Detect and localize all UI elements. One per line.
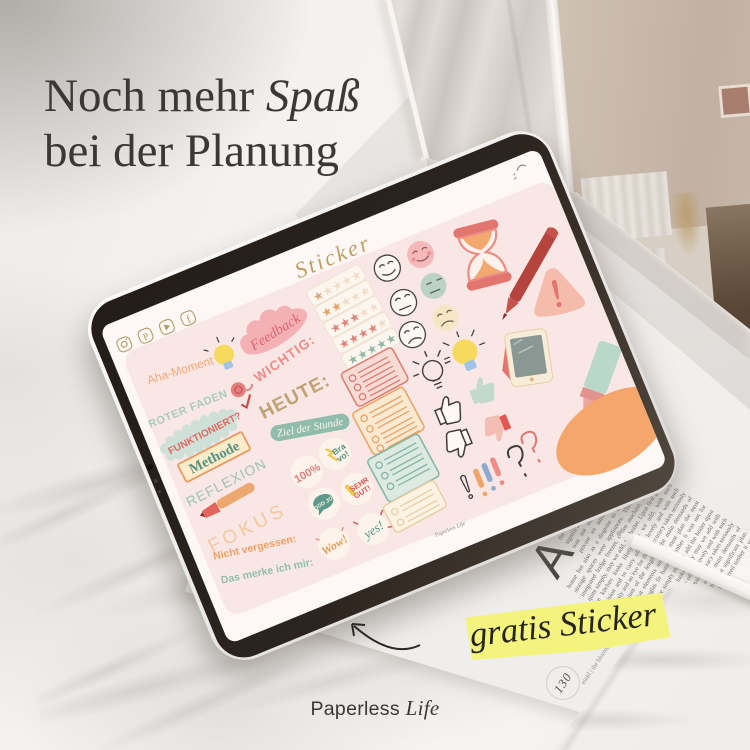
svg-text:P: P [142,331,152,343]
svg-text:f: f [185,313,193,326]
